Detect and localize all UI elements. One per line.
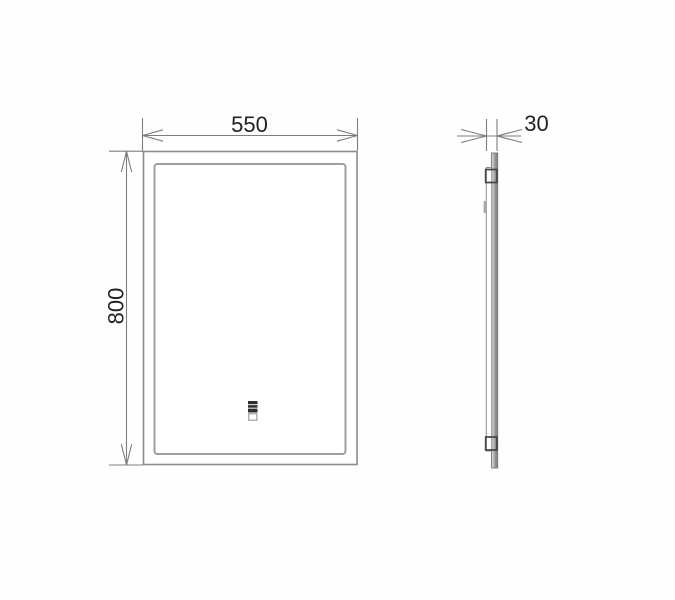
width-dimension-label: 550 xyxy=(231,112,268,137)
dimension-depth xyxy=(457,119,522,151)
drawing-canvas: 550 800 xyxy=(0,0,675,600)
height-dimension-label: 800 xyxy=(104,288,129,325)
mirror-dimension-drawing: 550 800 xyxy=(0,0,675,600)
side-frame-profile xyxy=(486,168,491,452)
touch-sensor-body xyxy=(248,401,258,413)
side-glass-panel xyxy=(492,153,498,468)
touch-sensor-base xyxy=(249,414,257,420)
depth-dimension-label: 30 xyxy=(524,111,548,136)
front-view xyxy=(144,152,358,465)
side-view xyxy=(484,153,498,468)
side-clip-nub xyxy=(484,201,487,213)
touch-sensor-icon xyxy=(248,401,258,420)
